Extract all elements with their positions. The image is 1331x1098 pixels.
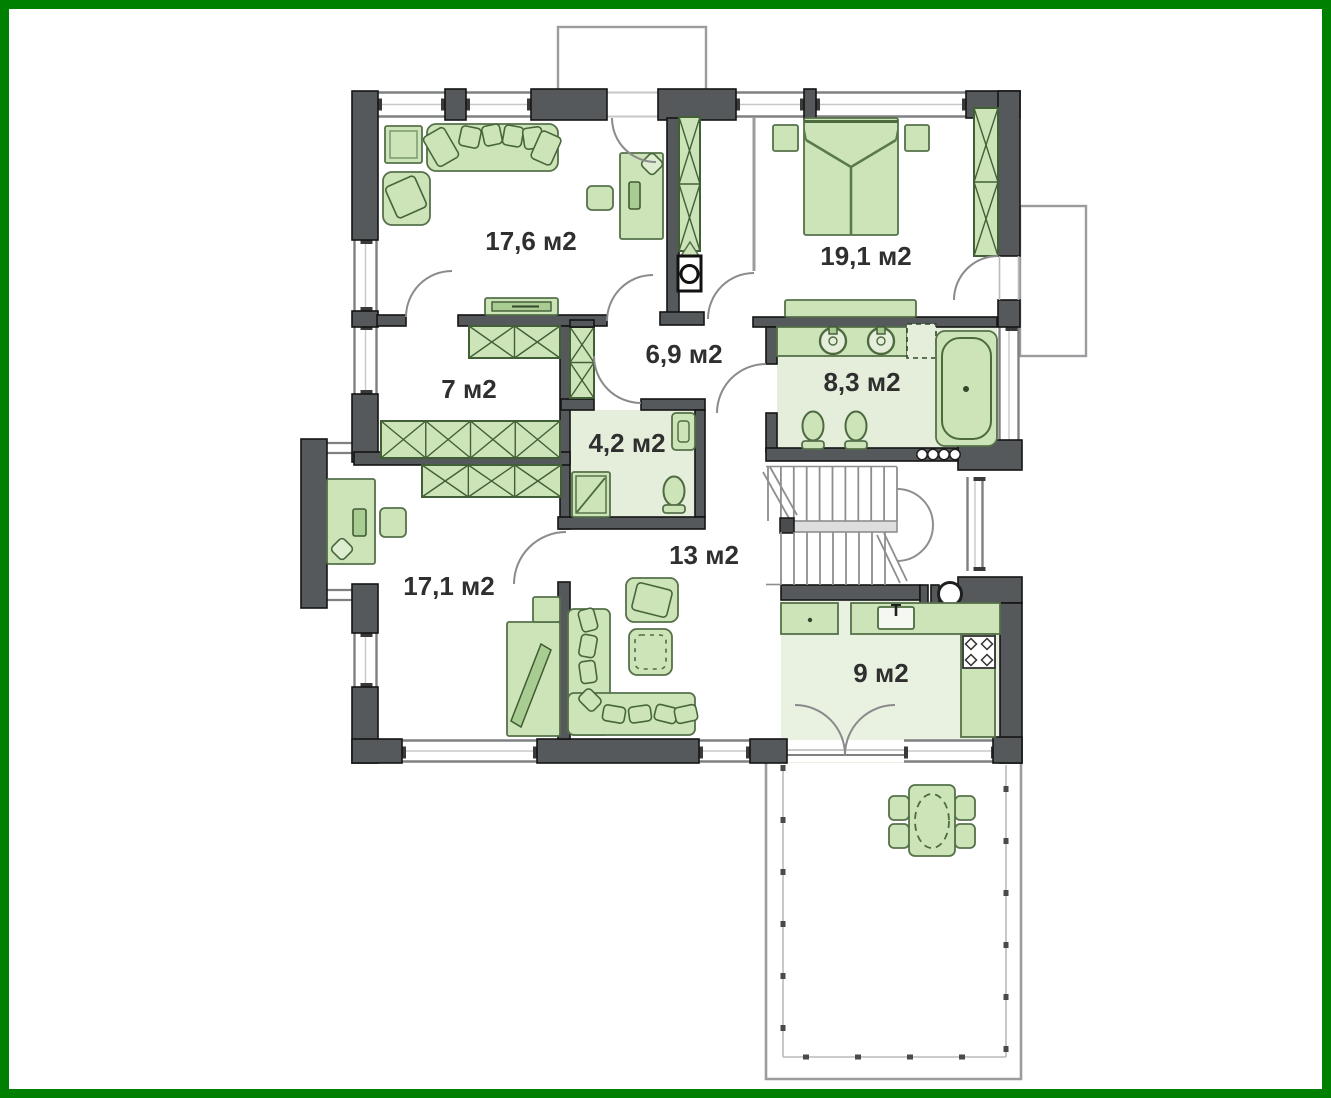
svg-text:17,1 м2: 17,1 м2: [403, 571, 495, 601]
svg-text:19,1 м2: 19,1 м2: [820, 241, 912, 271]
svg-text:7 м2: 7 м2: [441, 374, 496, 404]
svg-text:6,9 м2: 6,9 м2: [645, 339, 722, 369]
svg-text:13 м2: 13 м2: [669, 540, 739, 570]
svg-text:17,6 м2: 17,6 м2: [485, 226, 577, 256]
svg-text:4,2 м2: 4,2 м2: [588, 428, 665, 458]
svg-text:9 м2: 9 м2: [853, 658, 908, 688]
svg-text:8,3 м2: 8,3 м2: [823, 367, 900, 397]
